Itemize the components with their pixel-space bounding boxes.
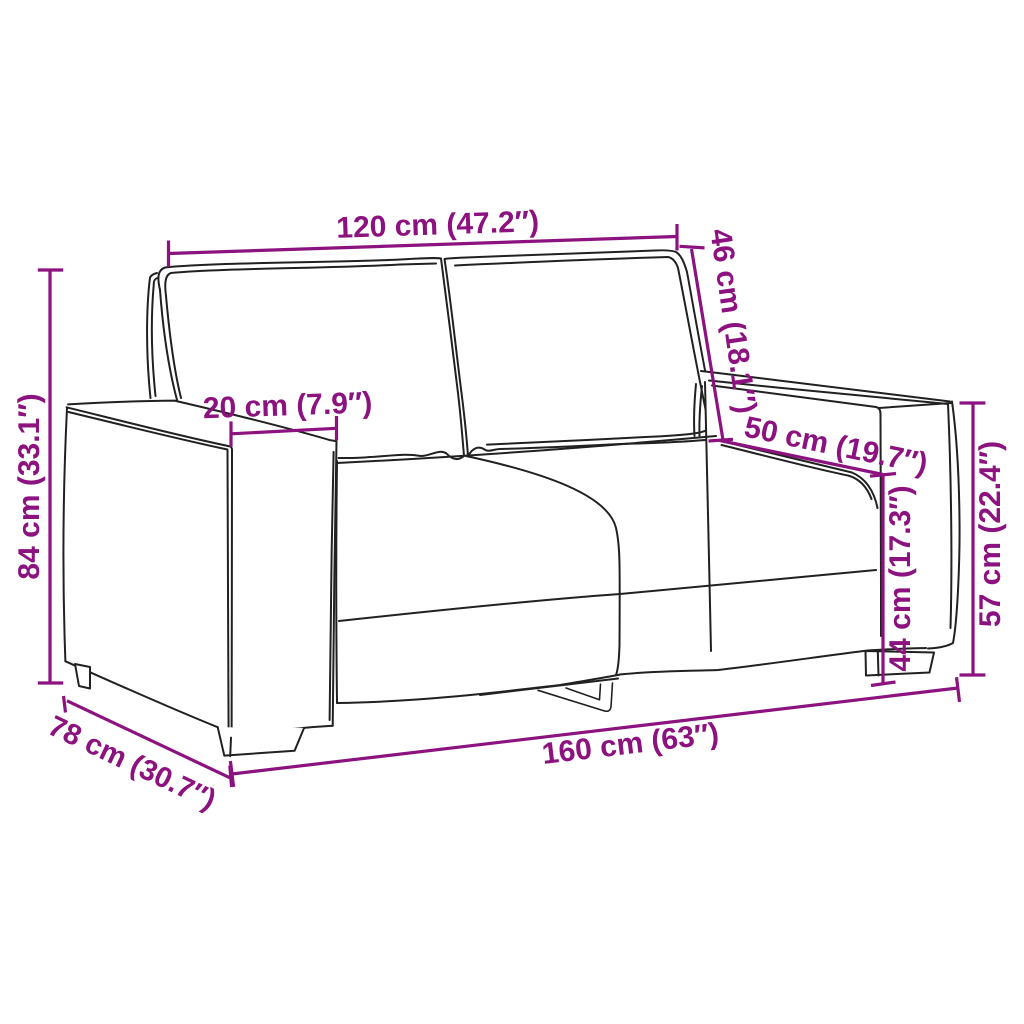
svg-text:20 cm (7.9″): 20 cm (7.9″) (202, 386, 373, 425)
svg-text:84 cm (33.1″): 84 cm (33.1″) (13, 393, 46, 579)
svg-text:44 cm (17.3″): 44 cm (17.3″) (884, 485, 917, 671)
svg-text:57 cm (22.4″): 57 cm (22.4″) (974, 441, 1007, 627)
svg-text:120 cm (47.2″): 120 cm (47.2″) (336, 205, 540, 245)
